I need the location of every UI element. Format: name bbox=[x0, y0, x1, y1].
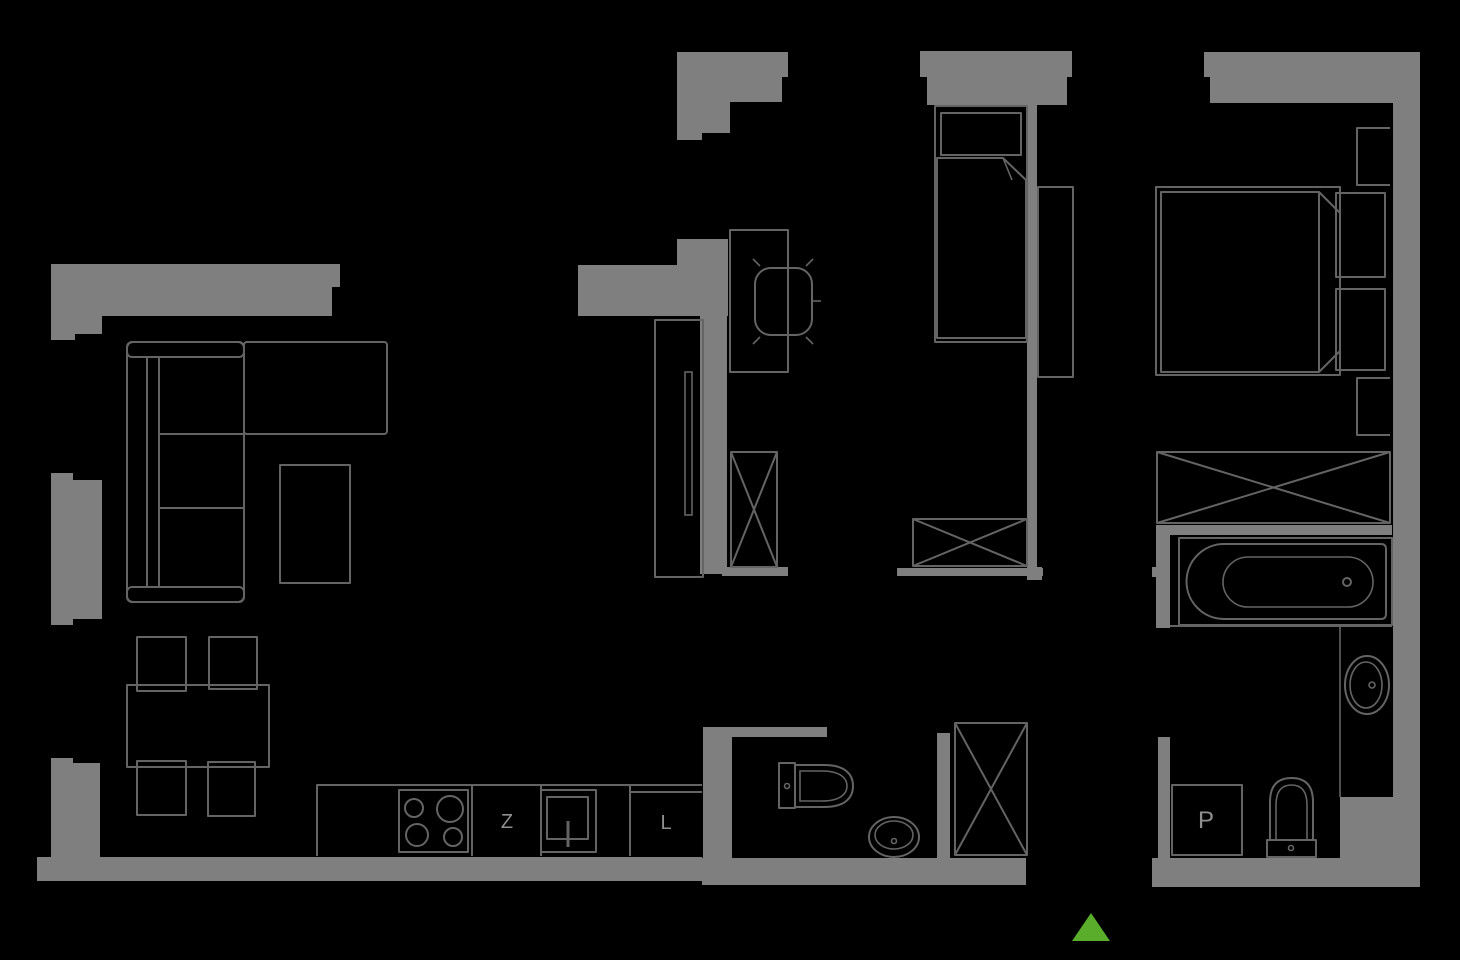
sofa-armrest-bottom bbox=[127, 587, 244, 602]
kitchen-sink bbox=[541, 790, 596, 852]
wall-segment bbox=[37, 857, 702, 881]
kitchen-counter: Z L bbox=[317, 785, 702, 856]
bathtub bbox=[1179, 538, 1392, 625]
bed-blanket bbox=[937, 158, 1026, 338]
wall-segment bbox=[1152, 567, 1156, 577]
wall-segment bbox=[75, 316, 102, 334]
burner bbox=[437, 796, 463, 822]
desk bbox=[730, 230, 788, 372]
basin-tap bbox=[1369, 682, 1375, 688]
wall-segment bbox=[1152, 858, 1420, 887]
basin-inner bbox=[875, 821, 913, 849]
hall-wardrobe bbox=[731, 452, 777, 567]
bed-frame bbox=[935, 106, 1027, 342]
sofa-body bbox=[127, 342, 244, 602]
toilet-bowl-inner bbox=[1276, 785, 1307, 840]
single-bed bbox=[935, 106, 1027, 342]
wall-segment bbox=[1158, 737, 1170, 858]
wall-segment bbox=[677, 77, 782, 102]
basin-inner bbox=[1350, 662, 1382, 708]
cabinet-door-slot bbox=[685, 372, 692, 515]
wall-segment bbox=[677, 133, 702, 140]
toilet-flush bbox=[1289, 846, 1294, 851]
headboard-cushion bbox=[1336, 289, 1385, 370]
bed-pillow bbox=[941, 113, 1021, 155]
wall-segment bbox=[920, 51, 1072, 77]
basin-outline bbox=[869, 817, 919, 857]
wc-toilet bbox=[779, 763, 853, 808]
wall-segment bbox=[703, 727, 732, 858]
basin-tap bbox=[892, 839, 897, 844]
wall-segment bbox=[578, 265, 728, 316]
sofa-armrest-top bbox=[127, 342, 244, 357]
dining-chair bbox=[137, 761, 186, 815]
wall-segment bbox=[897, 568, 1043, 576]
chair-armrest bbox=[753, 337, 760, 344]
wc-room bbox=[779, 763, 919, 857]
kitchen-sink-label: Z bbox=[501, 811, 513, 833]
wall-segment bbox=[51, 264, 332, 316]
burner bbox=[405, 799, 423, 817]
wall-segment bbox=[73, 763, 100, 860]
washing-machine: P bbox=[1172, 785, 1242, 855]
wall-segment bbox=[677, 52, 788, 77]
toilet-tank bbox=[779, 763, 795, 808]
desk-nook bbox=[730, 230, 821, 372]
wall-segment bbox=[1027, 105, 1037, 567]
wc-basin bbox=[869, 817, 919, 857]
sofa-chaise bbox=[244, 342, 387, 434]
wall-segment bbox=[73, 480, 102, 619]
nightstand bbox=[1357, 128, 1390, 185]
toilet-tank bbox=[1267, 840, 1316, 857]
dining-table bbox=[127, 685, 269, 767]
wall-segment bbox=[677, 239, 728, 265]
washing-machine-label: P bbox=[1198, 807, 1214, 834]
corridor-wardrobe bbox=[955, 723, 1027, 855]
wall-segment bbox=[722, 567, 788, 576]
wall-segment bbox=[927, 77, 1067, 105]
bathroom-toilet bbox=[1267, 778, 1316, 857]
dining-chair bbox=[137, 637, 186, 691]
corner-sofa bbox=[127, 342, 387, 602]
chair-armrest bbox=[753, 259, 760, 266]
wall-segment bbox=[700, 316, 727, 574]
bathtub-outline bbox=[1179, 538, 1392, 625]
coffee-table bbox=[280, 465, 350, 583]
bathtub-drain bbox=[1343, 578, 1351, 586]
burner bbox=[406, 824, 428, 846]
double-bed bbox=[1156, 128, 1390, 435]
toilet-flush bbox=[785, 784, 790, 789]
nightstand bbox=[1357, 378, 1390, 435]
wall-segment bbox=[1156, 525, 1392, 535]
bed-frame bbox=[1156, 187, 1340, 375]
toilet-bowl-inner bbox=[800, 771, 847, 801]
wall-segment bbox=[677, 102, 730, 133]
wall-segment bbox=[332, 264, 340, 287]
wall-segment bbox=[1340, 797, 1420, 858]
bed-mattress bbox=[1161, 192, 1319, 372]
dining-chair bbox=[209, 637, 257, 689]
washbasin bbox=[1345, 656, 1389, 714]
dining-chair bbox=[208, 762, 255, 816]
wall-segment bbox=[1156, 525, 1170, 628]
wall-segment bbox=[703, 727, 827, 737]
hall-cabinet bbox=[655, 320, 703, 577]
wall-segment bbox=[1204, 52, 1210, 77]
entrance-arrow-icon bbox=[1072, 913, 1110, 941]
bedroom2-wardrobe bbox=[913, 519, 1027, 566]
cooktop bbox=[399, 790, 468, 852]
dining-set bbox=[127, 637, 269, 816]
floor-plan-page: Z L bbox=[0, 0, 1460, 960]
bedroom1-cabinet bbox=[1038, 187, 1073, 377]
chair-armrest bbox=[806, 259, 813, 266]
bedroom1-wardrobe bbox=[1157, 452, 1390, 523]
fridge-label: L bbox=[660, 812, 671, 834]
wall-segment bbox=[1210, 52, 1393, 103]
floor-plan-canvas: Z L bbox=[0, 0, 1460, 960]
wall-segment bbox=[937, 733, 950, 858]
desk-chair-seat bbox=[755, 268, 812, 335]
headboard-cushion bbox=[1336, 193, 1385, 277]
wall-segment bbox=[1393, 52, 1420, 887]
wall-segment bbox=[51, 316, 75, 340]
wall-segment bbox=[51, 758, 73, 860]
wall-segment bbox=[51, 473, 73, 625]
chair-armrest bbox=[806, 337, 813, 344]
burner bbox=[444, 828, 462, 846]
cabinet-outline bbox=[655, 320, 703, 577]
wall-segment bbox=[702, 858, 1026, 885]
